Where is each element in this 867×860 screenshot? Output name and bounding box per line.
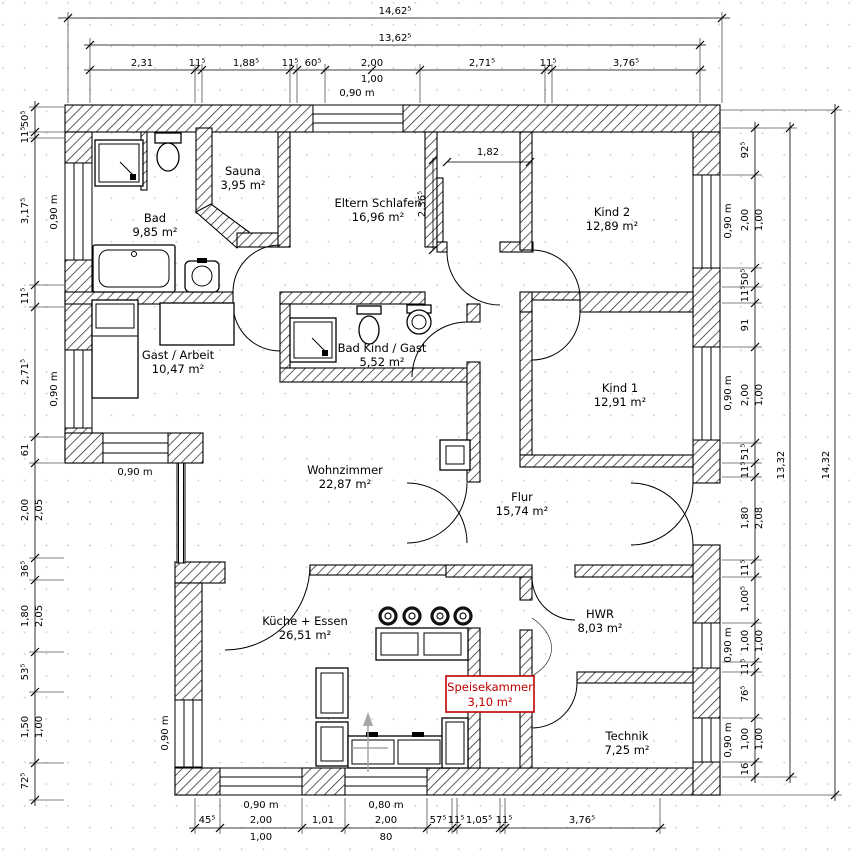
dim-top-seg-8: 3,76⁵ xyxy=(613,58,639,69)
dim-nook-width: 1,82 xyxy=(477,147,499,158)
dim-bottom-seg-5: 11⁵ xyxy=(448,815,465,826)
dim-top-window-label: 0,90 m xyxy=(339,88,374,99)
room-label-flur: Flur xyxy=(511,490,533,504)
dim-left-seg-11: 72⁵ xyxy=(20,773,31,790)
dim-top-seg-6: 2,71⁵ xyxy=(469,58,495,69)
window-top-eltern xyxy=(313,105,403,132)
dim-left-seg-8: 1,80 xyxy=(20,605,31,627)
dim-left-seg-7: 36⁵ xyxy=(20,561,31,578)
window-label-left-gast: 0,90 m xyxy=(49,371,60,406)
window-bottom-kueche-1 xyxy=(220,768,302,795)
dim-left-seg-1: 11⁵ xyxy=(20,127,31,144)
dim-bottom-seg-0: 45⁵ xyxy=(199,815,216,826)
dim-right-total-inner: 13,32 xyxy=(776,451,787,480)
dim-bottom-seg-8: 3,76⁵ xyxy=(569,815,595,826)
window-right-kind2 xyxy=(693,175,720,268)
window-right-technik xyxy=(693,718,720,762)
dim-left-col2-0: 2,05 xyxy=(34,499,45,521)
room-label-hwr: HWR xyxy=(586,607,614,621)
dim-bottom-seg-3: 2,00 xyxy=(375,815,397,826)
dim-top-total: 14,62⁵ xyxy=(379,6,412,17)
window-label-right-kind1: 0,90 m xyxy=(723,375,734,410)
kitchen-sink-island xyxy=(348,732,448,768)
shower-badkind xyxy=(290,318,336,362)
window-label-right-kind2: 0,90 m xyxy=(723,203,734,238)
dim-left-col2-1: 2,05 xyxy=(34,605,45,627)
dim-right-total-outer: 14,32 xyxy=(821,451,832,480)
dim-right-seg-11: 1,00 xyxy=(740,630,751,652)
desk-gast xyxy=(160,303,234,345)
dim-left-seg-4: 2,71⁵ xyxy=(20,359,31,385)
dim-left-seg-9: 53⁵ xyxy=(20,664,31,681)
fireplace-column xyxy=(440,440,470,470)
window-label-bottom-2: 0,80 m xyxy=(368,800,403,811)
room-area-bad: 9,85 m² xyxy=(132,225,177,239)
window-kueche-west xyxy=(175,700,202,767)
room-area-sauna: 3,95 m² xyxy=(220,178,265,192)
shower-bad xyxy=(95,140,143,186)
room-area-gast: 10,47 m² xyxy=(152,362,204,376)
sink-bad xyxy=(185,258,219,292)
dim-right-seg-2: 50⁵ xyxy=(740,269,751,286)
floorplan-svg: 14,62⁵ 13,62⁵ 2,31 11⁵ 1,88⁵ 11⁵ 60⁵ 2,0… xyxy=(0,0,867,860)
dim-bottom-seg-7: 11⁵ xyxy=(496,815,513,826)
room-label-bad: Bad xyxy=(144,211,166,225)
room-area-eltern: 16,96 m² xyxy=(352,210,404,224)
dim-top-seg-0: 2,31 xyxy=(131,58,153,69)
room-area-kueche: 26,51 m² xyxy=(279,628,331,642)
dim-right-col2-0: 1,00 xyxy=(754,209,765,231)
window-label-bottom-1: 0,90 m xyxy=(243,800,278,811)
dim-right-seg-4: 91 xyxy=(740,319,751,332)
room-area-badkind: 5,52 m² xyxy=(359,355,404,369)
room-label-wohnzimmer: Wohnzimmer xyxy=(307,463,383,477)
dim-right-seg-15: 16 xyxy=(740,763,751,776)
window-label-right-hwr: 0,90 m xyxy=(723,627,734,662)
room-label-kind1: Kind 1 xyxy=(602,381,638,395)
room-area-kind1: 12,91 m² xyxy=(594,395,646,409)
dim-left-seg-5: 61 xyxy=(20,444,31,457)
dim-right-seg-3: 11⁵ xyxy=(740,286,751,303)
dim-left-seg-2: 3,17⁵ xyxy=(20,198,31,224)
bed-gast xyxy=(92,300,138,398)
dim-right-seg-5: 2,00 xyxy=(740,384,751,406)
window-bottom-kueche-2 xyxy=(345,768,427,795)
dim-right-col2-1: 1,00 xyxy=(754,384,765,406)
window-label-left-bad: 0,90 m xyxy=(49,194,60,229)
dim-top-seg-5: 2,00 xyxy=(361,58,383,69)
dim-bottom-seg-4: 57⁵ xyxy=(430,815,447,826)
dim-left-seg-0: 50⁵ xyxy=(20,111,31,128)
room-label-technik: Technik xyxy=(605,729,649,743)
dim-right-seg-9: 11⁵ xyxy=(740,560,751,577)
dim-right-seg-0: 92⁵ xyxy=(740,142,751,159)
dim-right-col2-4: 1,00 xyxy=(754,728,765,750)
room-area-technik: 7,25 m² xyxy=(604,743,649,757)
dim-right-seg-8: 1,80 xyxy=(740,507,751,529)
dim-right-seg-14: 1,00 xyxy=(740,728,751,750)
room-label-gast: Gast / Arbeit xyxy=(142,348,215,362)
dim-top-seg-2: 1,88⁵ xyxy=(233,58,259,69)
dim-right-seg-6: 51⁵ xyxy=(740,444,751,461)
kitchen-tall-cabinets xyxy=(316,668,348,766)
room-label-kind2: Kind 2 xyxy=(594,205,630,219)
window-label-right-technik: 0,90 m xyxy=(723,722,734,757)
dim-left-seg-3: 11⁵ xyxy=(20,288,31,305)
window-right-hwr xyxy=(693,623,720,668)
bathtub-bad xyxy=(93,245,175,292)
dim-right-seg-10: 1,00⁵ xyxy=(740,586,751,612)
dim-bottom-seg-6: 1,05⁵ xyxy=(466,815,492,826)
kitchen-counter xyxy=(376,628,468,660)
dim-right-col2-2: 2,08 xyxy=(754,507,765,529)
sink-badkind xyxy=(407,305,431,334)
window-right-kind1 xyxy=(693,347,720,440)
toilet-bad xyxy=(155,133,181,171)
glass-front-wohnzimmer xyxy=(177,463,185,563)
dim-bottom-sub1: 1,00 xyxy=(250,832,272,843)
room-area-hwr: 8,03 m² xyxy=(577,621,622,635)
dim-bottom-seg-2: 1,01 xyxy=(312,815,334,826)
window-left-gast xyxy=(65,350,92,428)
dim-top-inner: 13,62⁵ xyxy=(379,33,412,44)
room-label-badkind: Bad Kind / Gast xyxy=(338,341,427,355)
room-label-sauna: Sauna xyxy=(225,164,261,178)
dim-top-sub: 1,00 xyxy=(361,74,383,85)
room-label-eltern: Eltern Schlafen xyxy=(334,196,421,210)
dim-left-seg-6: 2,00 xyxy=(20,499,31,521)
room-area-wohnzimmer: 22,87 m² xyxy=(319,477,371,491)
dim-right-seg-12: 11⁵ xyxy=(740,659,751,676)
dim-right-col2-3: 1,00 xyxy=(754,630,765,652)
room-area-flur: 15,74 m² xyxy=(496,504,548,518)
dim-right-seg-7: 11⁵ xyxy=(740,462,751,479)
room-area-speisekammer: 3,10 m² xyxy=(467,695,512,709)
dim-top-seg-3: 11⁵ xyxy=(282,58,299,69)
dim-top-seg-4: 60⁵ xyxy=(305,58,322,69)
toilet-badkind xyxy=(357,306,381,344)
dim-bottom-sub2: 80 xyxy=(380,832,393,843)
dim-top-seg-7: 11⁵ xyxy=(540,58,557,69)
dim-right-seg-13: 76⁵ xyxy=(740,686,751,703)
room-label-speisekammer: Speisekammer xyxy=(447,680,533,694)
dim-right-seg-1: 2,00 xyxy=(740,209,751,231)
dim-bottom-seg-1: 2,00 xyxy=(250,815,272,826)
dim-left-col2-2: 1,00 xyxy=(34,716,45,738)
window-label-kueche-west: 0,90 m xyxy=(160,715,171,750)
dim-left-seg-10: 1,50 xyxy=(20,716,31,738)
dim-top-seg-1: 11⁵ xyxy=(189,58,206,69)
room-area-kind2: 12,89 m² xyxy=(586,219,638,233)
window-gast-south xyxy=(103,433,168,463)
window-label-gast-south: 0,90 m xyxy=(117,467,152,478)
kitchen-side-cabinet xyxy=(442,718,468,768)
window-left-bad xyxy=(65,163,92,260)
room-label-kueche: Küche + Essen xyxy=(262,614,348,628)
